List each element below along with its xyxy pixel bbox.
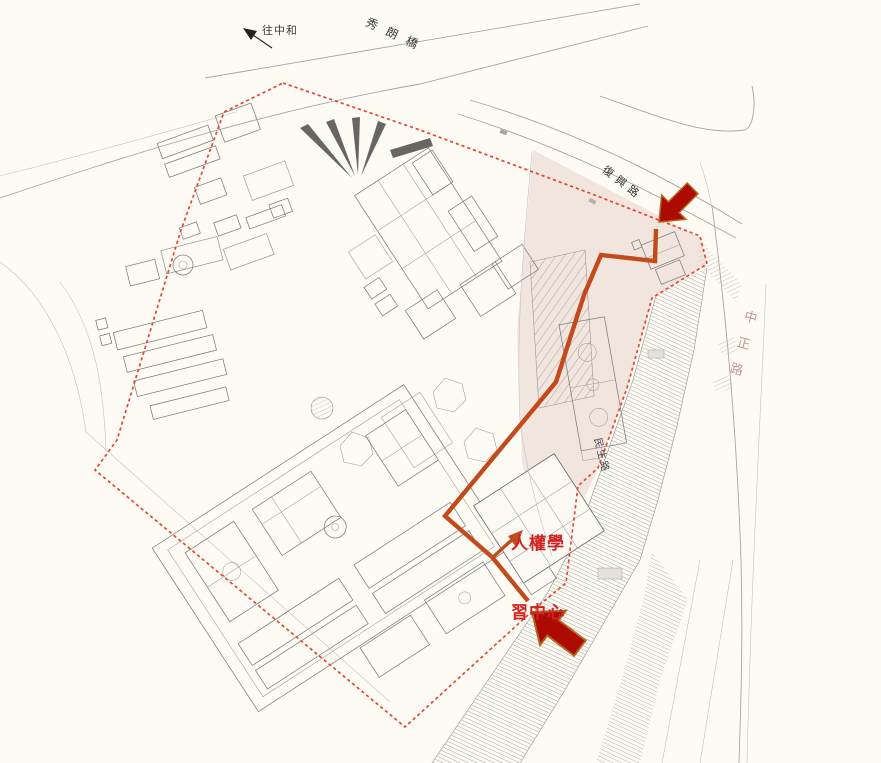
grid-roof-hall	[381, 392, 452, 467]
offramp-curve	[600, 86, 754, 131]
building-cluster-north	[319, 134, 542, 362]
site-plan-map	[0, 0, 881, 763]
shadow-fan	[300, 117, 433, 178]
fountain	[320, 512, 350, 542]
zhongzheng-road-east-line	[747, 284, 766, 763]
site-plan-page: 往中和 秀朗橋 復興路 中正路 民生路 人權學 習中心	[0, 0, 881, 763]
mini-note	[648, 350, 664, 358]
label-to-zhonghe: 往中和	[262, 25, 298, 36]
destination-line1: 人權學	[504, 533, 572, 556]
parking-area	[530, 250, 594, 408]
label-human-rights-learning-center: 人權學 習中心	[504, 487, 572, 648]
planting-blobs	[340, 378, 497, 466]
mini-note	[598, 568, 622, 579]
round-planter	[311, 397, 333, 419]
destination-line2: 習中心	[504, 602, 572, 625]
water-tower	[173, 255, 193, 275]
